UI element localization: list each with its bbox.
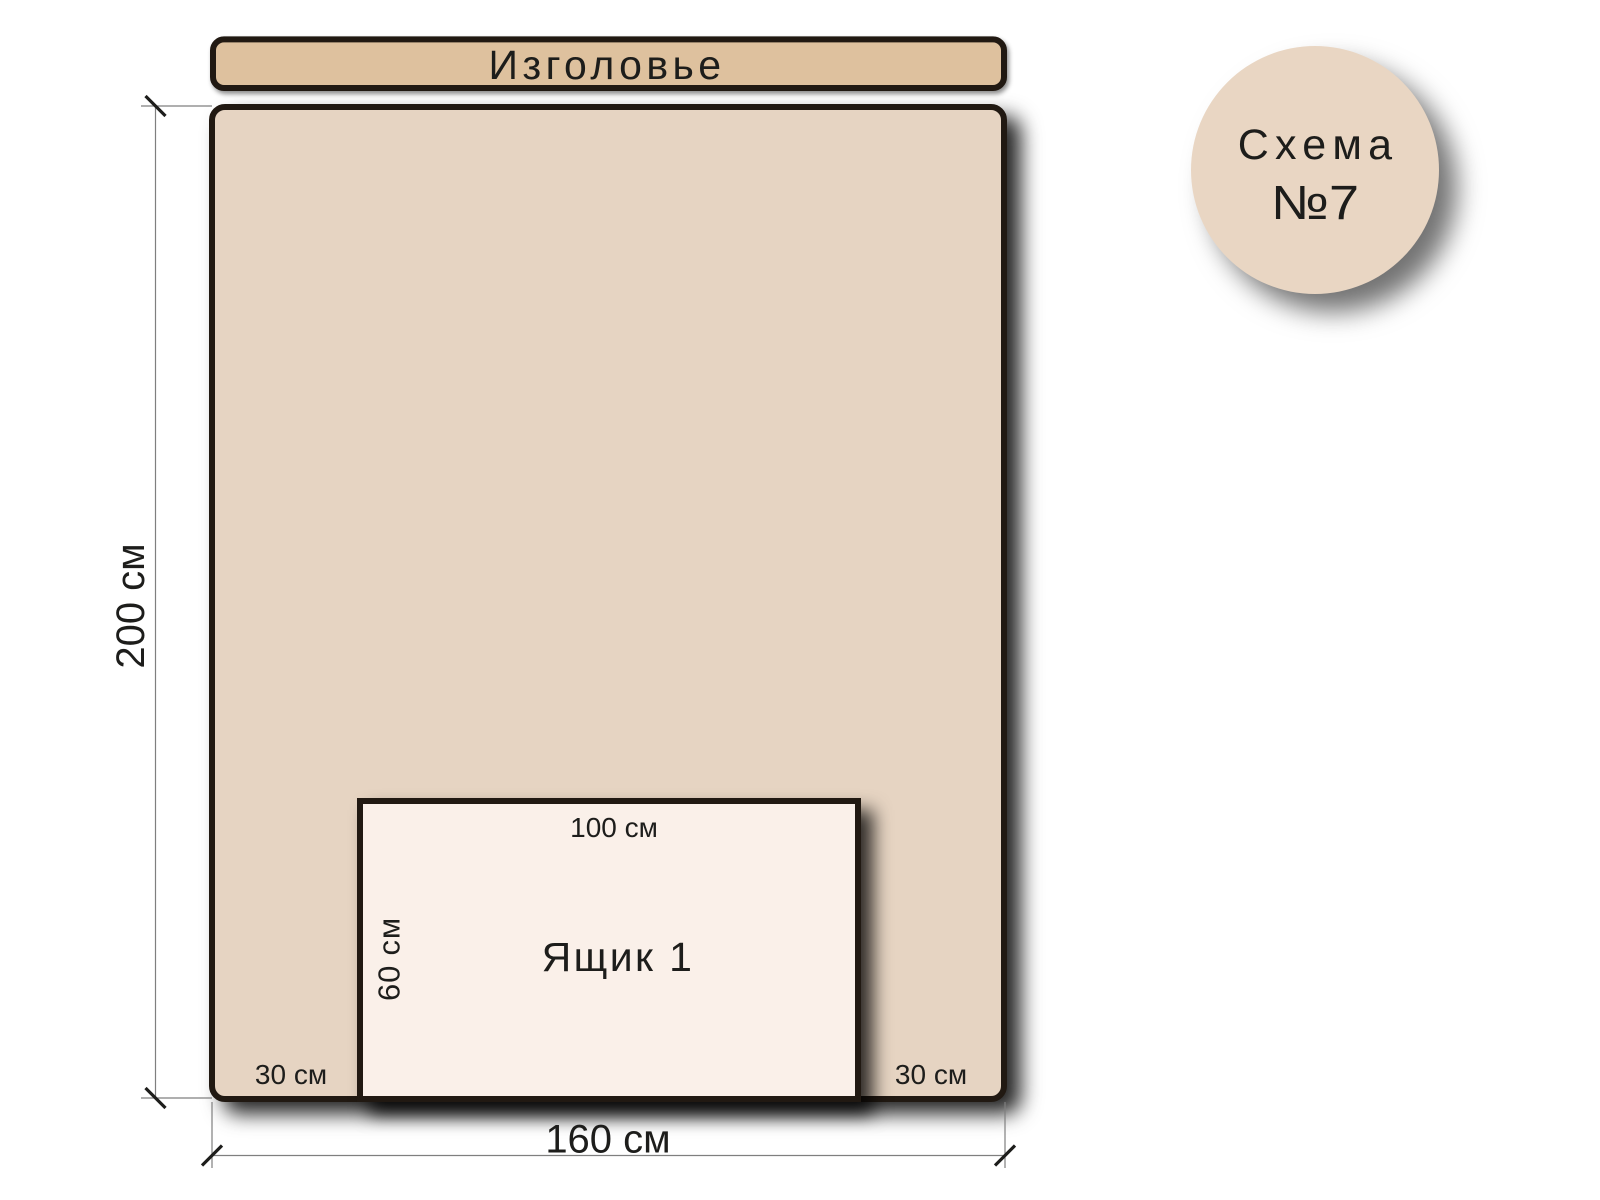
svg-text:Схема: Схема [1238, 121, 1398, 169]
svg-text:100 см: 100 см [570, 812, 658, 843]
svg-text:Ящик 1: Ящик 1 [542, 934, 695, 980]
svg-text:160 см: 160 см [545, 1118, 670, 1162]
svg-text:60 см: 60 см [372, 917, 407, 1001]
svg-text:№7: №7 [1271, 177, 1359, 230]
svg-text:200 см: 200 см [109, 543, 153, 668]
svg-text:30 см: 30 см [895, 1059, 967, 1090]
svg-text:Изголовье: Изголовье [489, 42, 726, 88]
svg-text:30 см: 30 см [255, 1059, 327, 1090]
